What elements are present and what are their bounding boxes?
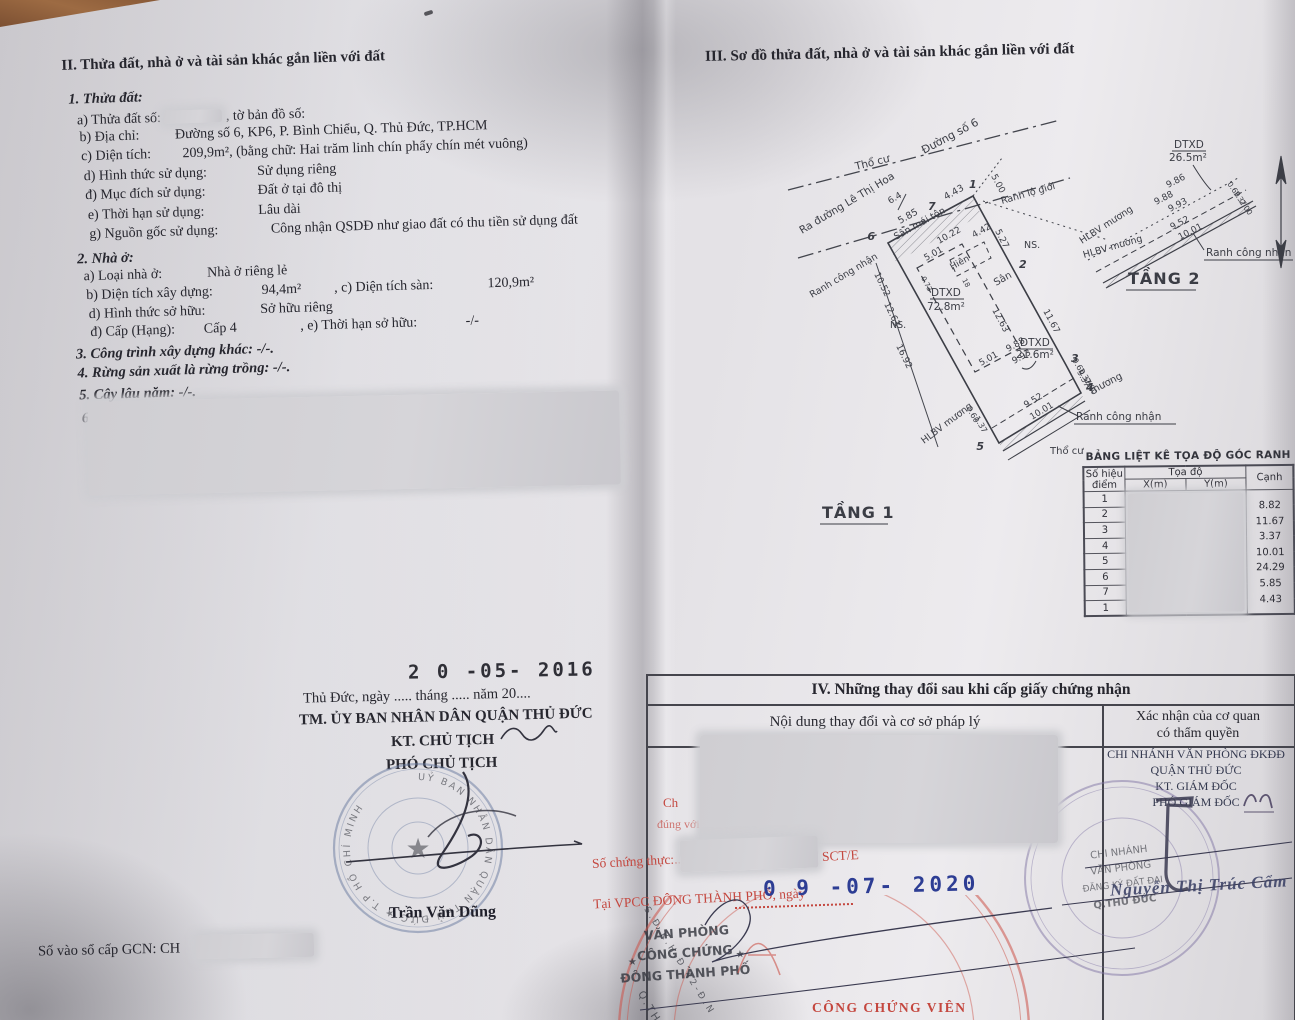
build-area-label: b) Diện tích xây dựng:: [86, 283, 258, 304]
tang-2-label: TẦNG 2: [1128, 267, 1201, 288]
section-3-title: III. Sơ đồ thửa đất, nhà ở và tài sản kh…: [705, 40, 1075, 66]
grade-value: Cấp 4: [204, 321, 237, 337]
dim-5-00: 5.00: [988, 173, 1006, 196]
dim-1-37-left: 1.37: [972, 415, 989, 435]
point-cell: 4: [1084, 538, 1126, 554]
value-dtxd-265: 26.5m²: [1169, 152, 1207, 164]
dtxd-216-leader: [1022, 361, 1036, 369]
notary-title: CÔNG CHỨNG VIÊN: [812, 1000, 967, 1016]
floor-2-diagram: DTXD 26.5m² 9.86 9.88 9.93 9.52 10.01 0.…: [1078, 139, 1293, 290]
origin-value: Công nhận QSDĐ như giao đất có thu tiền …: [271, 213, 579, 237]
scanned-certificate-page: II. Thửa đất, nhà ở và tài sản khác gắn …: [0, 0, 1295, 1020]
label-ranh-lo-gioi: Ranh lộ giới: [1000, 181, 1057, 207]
coordinate-table: Số hiệu điểm Tọa độ Cạnh X(m) Y(m) 1 8.8…: [1082, 464, 1295, 617]
north-arrow-icon: [1276, 156, 1286, 268]
label-san: Sân: [992, 269, 1014, 289]
label-tho-cu-top: Thổ cư: [853, 151, 893, 173]
point-cell: 6: [1084, 569, 1126, 585]
house-line-e: , e) Thời hạn sở hữu: -/-: [300, 314, 479, 335]
parcel-line-dd: đ) Mục đích sử dụng: Đất ở tại đô thị: [85, 181, 342, 205]
point-cell: 2: [1084, 507, 1126, 523]
parcel-heading: 1. Thửa đất:: [68, 89, 143, 108]
col-point-header: Số hiệu: [1086, 468, 1123, 479]
house-line-c: , c) Diện tích sàn: 120,9m²: [334, 275, 534, 297]
label-duong-so-6: Đường số 6: [919, 116, 980, 157]
label-ra-duong: Ra đường Lê Thị Hoa: [797, 170, 896, 236]
own-form-value: Sở hữu riêng: [260, 300, 333, 317]
date-line: Thủ Đức, ngày ..... tháng ..... năm 20..…: [303, 685, 531, 707]
dim-4-43: 4.43: [942, 183, 966, 203]
point-cell: 5: [1084, 554, 1126, 570]
dim-4-42: 4.42: [971, 222, 993, 240]
origin-label: g) Nguồn gốc sử dụng:: [89, 222, 267, 243]
col-edge-header: Cạnh: [1246, 465, 1294, 490]
point-cell: 3: [1084, 522, 1126, 538]
use-purpose-value: Đất ở tại đô thị: [257, 181, 342, 198]
section-4-col-right-header: Xác nhận của cơ quan có thẩm quyền: [1102, 708, 1294, 742]
edge-value: 4.43: [1248, 591, 1294, 607]
edge-value: 5.85: [1248, 576, 1294, 592]
own-term-label: , e) Thời hạn sở hữu:: [300, 314, 462, 335]
item-4: 4. Rừng sản xuất là rừng trồng: -/-.: [77, 359, 290, 382]
use-purpose-label: đ) Mục đích sử dụng:: [85, 183, 254, 204]
house-line-dd: đ) Cấp (Hạng): Cấp 4: [90, 321, 237, 341]
use-form-label: d) Hình thức sử dụng:: [83, 164, 253, 185]
coordinate-table-title: BẢNG LIỆT KÊ TỌA ĐỘ GÓC RANH: [1082, 449, 1294, 463]
cert-number-suffix: SCT/E: [822, 847, 860, 865]
edge-value: 11.67: [1247, 514, 1293, 530]
label-ranh-cong-nhan-left: Ranh công nhận: [808, 251, 880, 300]
redaction-blur-coordinates: [1128, 492, 1245, 612]
label-dtxd-728: DTXD: [931, 287, 961, 299]
dim-10-52: 10.52: [871, 271, 891, 299]
label-ns-right: NS.: [1024, 240, 1040, 251]
red-fragment-2: đúng với: [657, 817, 700, 832]
point-cell: 1: [1085, 600, 1127, 616]
floor-area-label: , c) Diện tích sàn:: [334, 276, 484, 296]
label-hlbv-bottom-left: HLBV mương: [919, 401, 975, 447]
house-line-d: d) Hình thức sở hữu: Sở hữu riêng: [89, 300, 333, 323]
label-ranh-cong-nhan-bottom: Ranh công nhận: [1076, 411, 1161, 423]
svg-text:2: 2: [1019, 258, 1027, 271]
dim-5-27: 5.27: [992, 228, 1010, 250]
dim-5-01-bottom: 5.01: [978, 350, 1000, 368]
own-term-value: -/-: [465, 314, 479, 329]
house-heading: 2. Nhà ở:: [77, 250, 134, 269]
edge-value: 24.29: [1247, 560, 1293, 576]
red-fragment-1: Ch: [663, 795, 678, 811]
section-4-title: IV. Những thay đổi sau khi cấp giấy chứn…: [648, 676, 1294, 704]
signer-name: Trần Văn Dũng: [389, 903, 496, 922]
issue-date-stamp: 2 0 -05- 2016: [408, 658, 596, 683]
use-term-label: e) Thời hạn sử dụng:: [88, 203, 255, 224]
label-tho-cu-bottom: Thổ cư: [1049, 444, 1084, 457]
section-2-title: II. Thửa đất, nhà ở và tài sản khác gắn …: [61, 48, 385, 75]
dim-18: 18: [960, 277, 971, 289]
house-type-label: a) Loại nhà ở:: [83, 266, 203, 286]
use-form-value: Sử dụng riêng: [257, 162, 337, 179]
svg-text:1: 1: [969, 178, 977, 191]
area-label: c) Diện tích:: [81, 146, 179, 165]
label-dtxd-265: DTXD: [1174, 139, 1204, 151]
col-x-header: X(m): [1125, 479, 1186, 492]
wood-table-corner: [0, 0, 170, 30]
tang-1-label: TẦNG 1: [822, 501, 895, 522]
dust-speck: [424, 10, 434, 17]
section-4-col-left-header: Nội dung thay đổi và cơ sở pháp lý: [648, 714, 1102, 731]
coordinate-table-block: BẢNG LIỆT KÊ TỌA ĐỘ GÓC RANH Số hiệu điể…: [1082, 449, 1295, 617]
build-area-value: 94,4m²: [261, 282, 301, 298]
dim-12-63-left: 12.63: [881, 301, 901, 329]
label-muong: mương: [1088, 371, 1124, 397]
grade-label: đ) Cấp (Hạng):: [90, 322, 200, 341]
redaction-blur-notes: [87, 390, 621, 495]
dim-6-4: 6.4: [887, 191, 905, 207]
svg-text:6: 6: [867, 230, 875, 243]
edge-value: 10.01: [1247, 545, 1293, 561]
floor-area-value: 120,9m²: [487, 275, 534, 291]
dim-11-67: 11.67: [1040, 308, 1061, 335]
dim-12-63-inner: 12.63: [989, 307, 1010, 334]
dim-5-01-top: 5.01: [923, 245, 945, 263]
book-number-line: Số vào sổ cấp GCN: CH: [38, 941, 181, 961]
parcel-number-label: a) Thửa đất số:: [77, 111, 161, 128]
dim2-9-86: 9.86: [1165, 173, 1188, 191]
edge-value: 3.37: [1247, 529, 1293, 545]
redaction-blur-book-number: [196, 933, 314, 959]
label-dtxd-216: DTXD: [1020, 337, 1050, 349]
col-y-header: Y(m): [1186, 478, 1247, 491]
address-label: b) Địa chỉ:: [79, 128, 171, 147]
value-dtxd-216: 21.6m²: [1016, 349, 1054, 361]
office-line-1: CHI NHÁNH VĂN PHÒNG ĐKĐĐ: [1100, 746, 1292, 762]
edge-value: 8.82: [1247, 498, 1293, 514]
use-term-value: Lâu dài: [258, 202, 301, 218]
notary-signature-strokes: [600, 880, 1200, 1020]
svg-text:5: 5: [976, 440, 984, 453]
svg-text:7: 7: [928, 200, 936, 213]
redaction-blur-cert-number: [679, 836, 818, 873]
redaction-blur-parcel-number: [164, 109, 222, 124]
point-cell: 7: [1085, 585, 1127, 601]
point-cell: 1: [1084, 491, 1126, 507]
house-type-value: Nhà ở riêng lẻ: [207, 263, 288, 280]
redaction-blur-changes: [700, 735, 1058, 843]
dim-16-92: 16.92: [893, 343, 913, 371]
value-dtxd-728: 72.8m²: [927, 301, 965, 313]
map-sheet-label: , tờ bản đồ số:: [226, 107, 306, 124]
chairman-signature: [368, 742, 618, 917]
